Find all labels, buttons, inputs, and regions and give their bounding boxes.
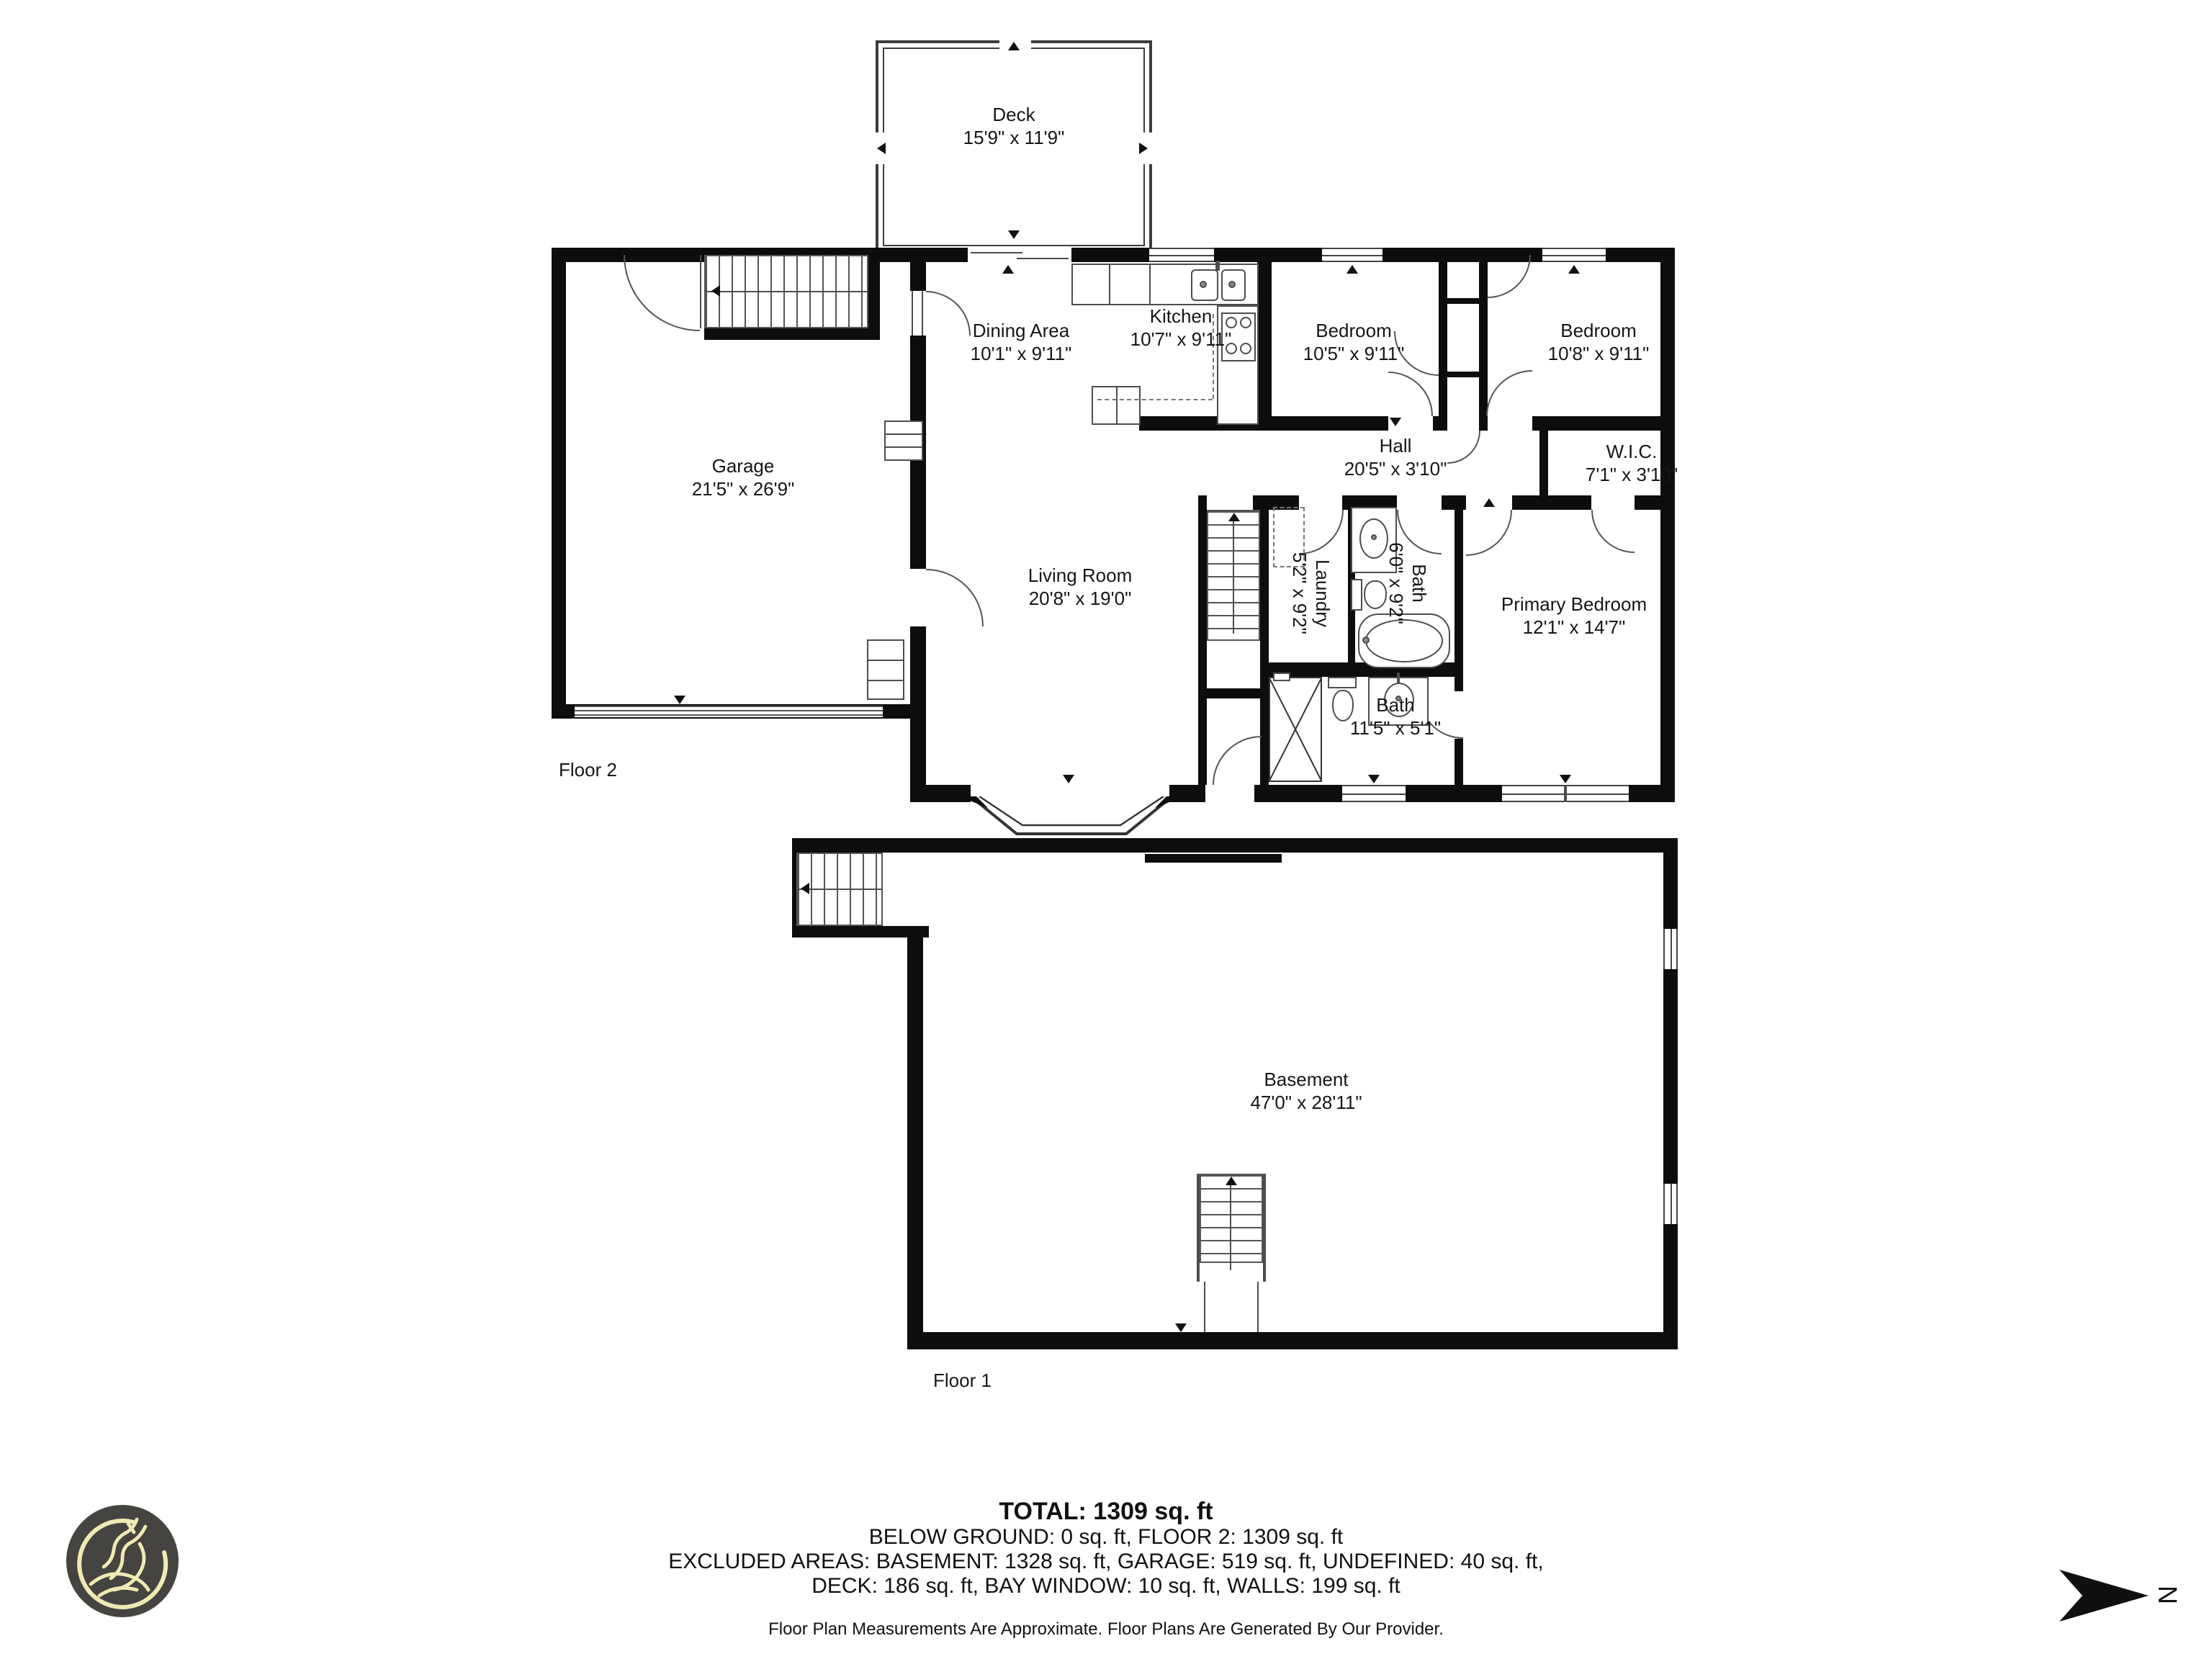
room-label-living: Living Room20'8" x 19'0": [1028, 565, 1133, 611]
window: [1322, 248, 1382, 262]
marker-icon: [1008, 230, 1020, 239]
shelf-unit: [867, 639, 904, 700]
wall: [1663, 838, 1678, 1349]
wolf-logo-icon: [65, 1503, 180, 1619]
door-opening: [1486, 416, 1532, 431]
wall: [1439, 248, 1447, 431]
wall: [907, 1332, 1678, 1349]
door-leaf: [700, 255, 701, 328]
wall: [704, 328, 880, 340]
floor1-label: Floor 1: [933, 1370, 992, 1391]
stair-rail: [1204, 1282, 1205, 1332]
faucet-icon: [1397, 673, 1400, 683]
stair-direction-line: [796, 889, 883, 890]
floor-plan-page: Deck15'9" x 11'9": [0, 0, 2212, 1659]
window: [1542, 248, 1606, 262]
marker-icon: [1560, 775, 1571, 783]
toilet-tank-icon: [1351, 579, 1362, 611]
door-opening: [1447, 416, 1480, 431]
door-arc: [1486, 370, 1532, 416]
entry-door-line: [922, 291, 923, 336]
marker-icon: [877, 143, 886, 154]
stair-direction-arrow: [711, 285, 720, 297]
marker-icon: [674, 696, 685, 704]
window: [1342, 785, 1406, 802]
stair-direction-arrow: [1226, 1177, 1237, 1185]
utility-box: [884, 421, 923, 461]
utility-box-line: [886, 446, 922, 448]
wall: [1539, 416, 1548, 510]
window: [1149, 248, 1214, 262]
door-arc: [1591, 510, 1635, 553]
door-arc: [1488, 255, 1531, 298]
wall: [910, 626, 926, 802]
faucet-dot-icon: [1371, 534, 1377, 540]
stair-wall: [1263, 1174, 1266, 1282]
entry-door-line: [912, 291, 913, 336]
room-label-basement: Basement47'0" x 28'11": [1250, 1069, 1362, 1115]
wall: [1439, 372, 1488, 377]
north-label: N: [2152, 1586, 2182, 1604]
sliding-door-panel: [1017, 258, 1069, 259]
faucet-dot-icon: [1362, 637, 1370, 644]
counter-divider: [1109, 264, 1110, 305]
sliding-door-panel: [971, 252, 1022, 253]
wall: [1479, 248, 1488, 431]
door-arc: [1447, 431, 1480, 464]
marker-icon: [1483, 498, 1495, 507]
door-arc: [1299, 510, 1344, 554]
wall-stub: [1145, 854, 1282, 863]
north-arrow-icon: [2059, 1567, 2154, 1624]
sliding-door: [968, 248, 1071, 262]
wall: [1660, 248, 1675, 802]
garage-door: [575, 706, 883, 717]
door-opening: [1591, 495, 1635, 510]
door-arc: [624, 255, 700, 331]
room-label-bath-lower: Bath11'5" x 5'1": [1350, 694, 1441, 740]
window: [1663, 929, 1678, 969]
faucet-dot-icon: [1200, 281, 1207, 288]
floor2-label: Floor 2: [559, 759, 617, 781]
wall: [910, 248, 926, 291]
room-label-bedroom2: Bedroom10'8" x 9'11": [1548, 320, 1650, 366]
wall: [1257, 248, 1272, 431]
utility-box-line: [886, 433, 922, 435]
door-arc: [1388, 372, 1433, 416]
summary-line: DECK: 186 sq. ft, BAY WINDOW: 10 sq. ft,…: [0, 1574, 2212, 1599]
door-arc: [1213, 736, 1262, 785]
counter-divider: [1149, 264, 1151, 305]
door-arc: [926, 569, 984, 626]
shower-head-icon: [1273, 673, 1290, 681]
wall: [1455, 495, 1463, 785]
room-label-bath-upper: Bath6'0" x 9'2": [1384, 542, 1430, 624]
stair-rail: [1257, 1282, 1259, 1332]
wall: [552, 248, 566, 719]
summary-line: EXCLUDED AREAS: BASEMENT: 1328 sq. ft, G…: [0, 1550, 2212, 1574]
door-opening: [1299, 495, 1342, 510]
room-label-hall: Hall20'5" x 3'10": [1344, 435, 1447, 481]
wall: [1439, 298, 1488, 304]
marker-icon: [1568, 265, 1580, 274]
summary-line: BELOW GROUND: 0 sq. ft, FLOOR 2: 1309 sq…: [0, 1525, 2212, 1550]
marker-icon: [1175, 1323, 1187, 1332]
stair-direction-line: [1233, 518, 1234, 634]
stair-opening: [1207, 495, 1253, 510]
window-mullion: [1564, 785, 1567, 802]
wall: [907, 926, 923, 1349]
faucet-dot-icon: [1228, 281, 1236, 288]
burner-icon: [1240, 343, 1251, 354]
marker-icon: [1008, 42, 1020, 50]
counter-divider: [1116, 386, 1118, 425]
shower-icon: [1269, 677, 1322, 782]
marker-icon: [1002, 265, 1014, 274]
disclaimer-text: Floor Plan Measurements Are Approximate.…: [0, 1619, 2212, 1639]
marker-icon: [1139, 143, 1148, 154]
door-arc: [926, 291, 971, 336]
room-label-primary: Primary Bedroom12'1" x 14'7": [1501, 593, 1647, 639]
marker-icon: [1390, 418, 1401, 426]
marker-icon: [1063, 775, 1074, 783]
burner-icon: [1240, 317, 1251, 328]
room-label-dining: Dining Area10'1" x 9'11": [971, 320, 1072, 366]
room-label-laundry: Laundry5'2" x 9'2": [1287, 552, 1334, 634]
shelf-line: [868, 660, 903, 661]
door-opening: [1205, 785, 1254, 802]
room-label-kitchen: Kitchen10'7" x 9'11": [1130, 305, 1232, 351]
room-label-wic: W.I.C.7'1" x 3'10": [1586, 441, 1678, 487]
door-opening: [1397, 495, 1442, 510]
marker-icon: [1368, 775, 1380, 783]
wall: [792, 838, 1678, 853]
total-area-text: TOTAL: 1309 sq. ft: [0, 1498, 2212, 1527]
wall: [868, 248, 880, 340]
wall: [1198, 688, 1269, 698]
stairs-basement-center: [1200, 1174, 1263, 1263]
room-label-bedroom1: Bedroom10'5" x 9'11": [1303, 320, 1405, 366]
cabinet-dash-line: [1097, 399, 1213, 400]
room-label-deck: Deck15'9" x 11'9": [963, 104, 1065, 150]
stair-direction-arrow: [801, 883, 809, 894]
faucet-icon: [1215, 261, 1220, 271]
stair-direction-line: [1230, 1181, 1231, 1270]
room-label-garage: Garage21'5" x 26'9": [692, 455, 795, 501]
toilet-tank-icon: [1328, 677, 1357, 688]
door-arc: [1466, 510, 1512, 556]
wall: [1198, 495, 1207, 785]
stair-rail: [704, 291, 868, 292]
marker-icon: [1346, 265, 1358, 274]
shelf-line: [868, 680, 903, 681]
bathtub-inner: [1365, 619, 1443, 662]
window: [1663, 1184, 1678, 1224]
stair-direction-arrow: [1228, 513, 1240, 521]
